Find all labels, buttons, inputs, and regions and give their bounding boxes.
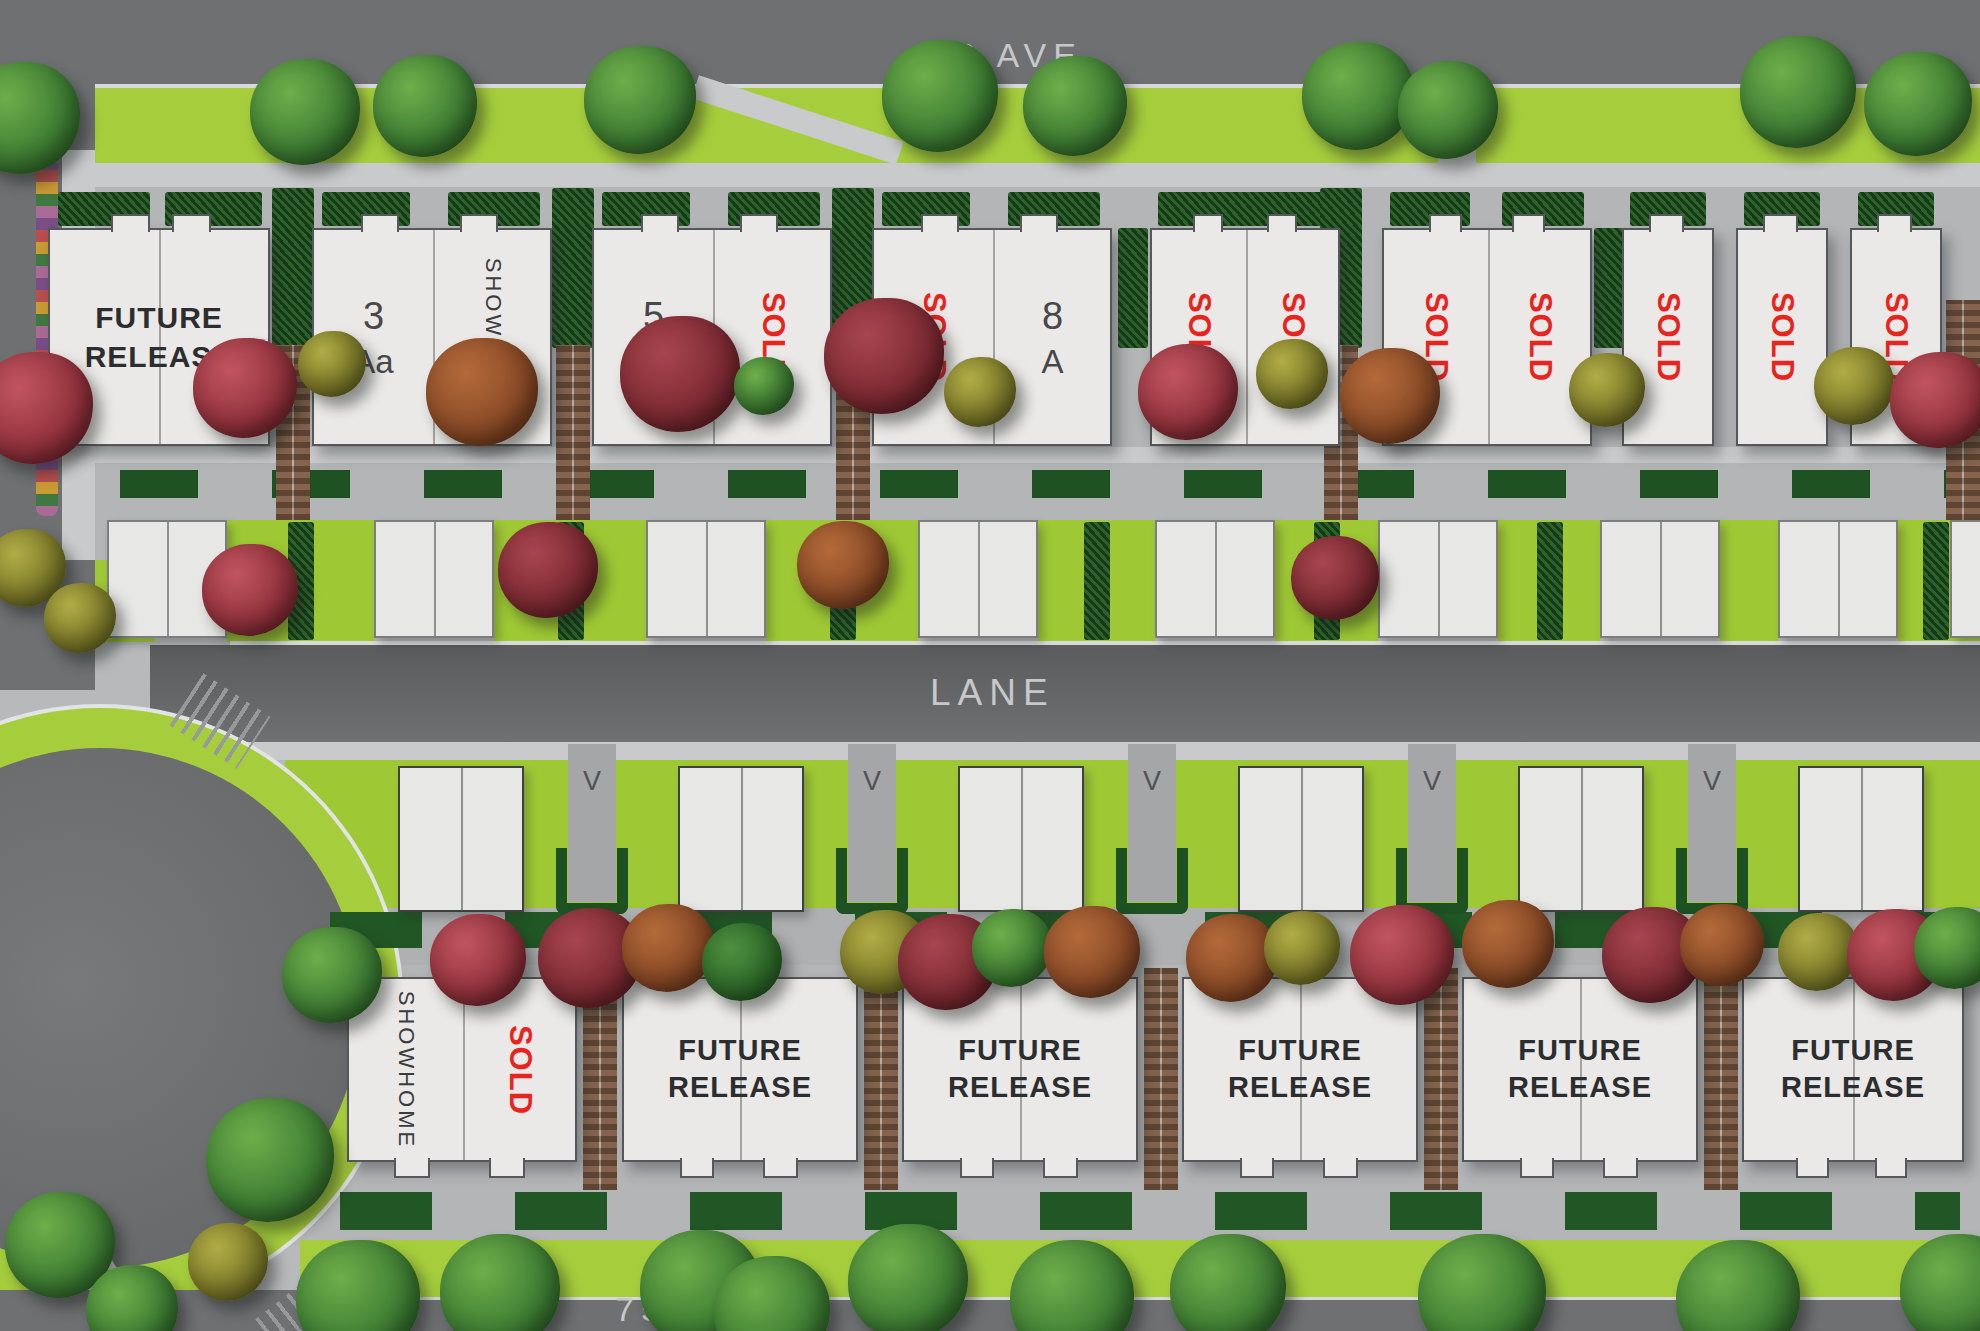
garage-pair [1798, 766, 1924, 912]
garage-pair [398, 766, 524, 912]
garage-pair [1238, 766, 1364, 912]
showhome-label: SHOWHOME [393, 990, 419, 1148]
visitor-stall-label: V [568, 766, 616, 797]
unit-label: FUTURE RELEASE [1464, 1032, 1696, 1107]
brick-walkway [556, 345, 590, 520]
lane-lawn [1720, 520, 1778, 642]
tree [848, 1224, 968, 1331]
visitor-stall-label: V [1688, 766, 1736, 797]
sold-label: SOLD [1522, 292, 1558, 382]
unit-label: FUTURE RELEASE [1744, 1032, 1962, 1107]
sold-label: SOLD [1764, 292, 1800, 382]
unit-sold[interactable]: SOLD [1622, 228, 1714, 446]
garage-pair [1155, 520, 1275, 638]
hedge-column [1084, 522, 1110, 640]
building-showhome-bottom: SHOWHOME SOLD [347, 977, 577, 1162]
garage-pair [918, 520, 1038, 638]
garage-pair [1778, 520, 1898, 638]
hedge-u [836, 848, 908, 914]
visitor-stall-label: V [848, 766, 896, 797]
visitor-stall-label: V [1408, 766, 1456, 797]
hedge-column [1594, 228, 1624, 348]
tree [1890, 352, 1980, 448]
unit-label: FUTURE RELEASE [904, 1032, 1136, 1107]
brick-walkway [1144, 968, 1178, 1190]
hedge-column [1537, 522, 1563, 640]
garage-pair [1518, 766, 1644, 912]
unit-label: FUTURE RELEASE [1184, 1032, 1416, 1107]
hedge-row-bottom [340, 1192, 1960, 1230]
building-future-release[interactable]: FUTURE RELEASE [1462, 977, 1698, 1162]
lane-road [150, 645, 1980, 742]
hedge-column [552, 188, 594, 348]
garage-pair [678, 766, 804, 912]
rear-walk-top [95, 447, 1980, 463]
garage-pair [646, 520, 766, 638]
sold-label: SOLD [1650, 292, 1686, 382]
hedge-u [1116, 848, 1188, 914]
hedge-column [272, 188, 314, 348]
site-plan: 76 AVE LANE 75B AVE N [0, 0, 1980, 1331]
unit-label: FUTURE RELEASE [624, 1032, 856, 1107]
hedge-row-rear [120, 470, 1960, 498]
garage-pair [1378, 520, 1498, 638]
hedge [1158, 192, 1332, 226]
hedge-u [556, 848, 628, 914]
garage-pair [1950, 520, 1980, 638]
sidewalk-top [95, 163, 1980, 187]
unit-8-a[interactable]: 8A [995, 230, 1110, 444]
unit-sold[interactable]: SOLD [465, 979, 575, 1160]
brick-walkway [864, 968, 898, 1190]
hedge-column [1923, 522, 1949, 640]
tree [1170, 1234, 1286, 1331]
visitor-stall-label: V [1128, 766, 1176, 797]
building-future-release[interactable]: FUTURE RELEASE [1742, 977, 1964, 1162]
garage-pair [958, 766, 1084, 912]
brick-walkway [1704, 968, 1738, 1190]
building-future-release[interactable]: FUTURE RELEASE [1182, 977, 1418, 1162]
unit-sold[interactable]: SOLD [1248, 230, 1338, 444]
garage-pair [1600, 520, 1720, 638]
building-future-release[interactable]: FUTURE RELEASE [622, 977, 858, 1162]
unit-number: 8A [995, 293, 1110, 382]
lane-label: LANE [930, 672, 1055, 714]
unit-sold[interactable]: SOLD [1736, 228, 1828, 446]
hedge-column [1118, 228, 1148, 348]
brick-walkway [1424, 968, 1458, 1190]
garage-pair [374, 520, 494, 638]
sold-label: SOLD [502, 1024, 538, 1114]
tree [440, 1234, 560, 1331]
